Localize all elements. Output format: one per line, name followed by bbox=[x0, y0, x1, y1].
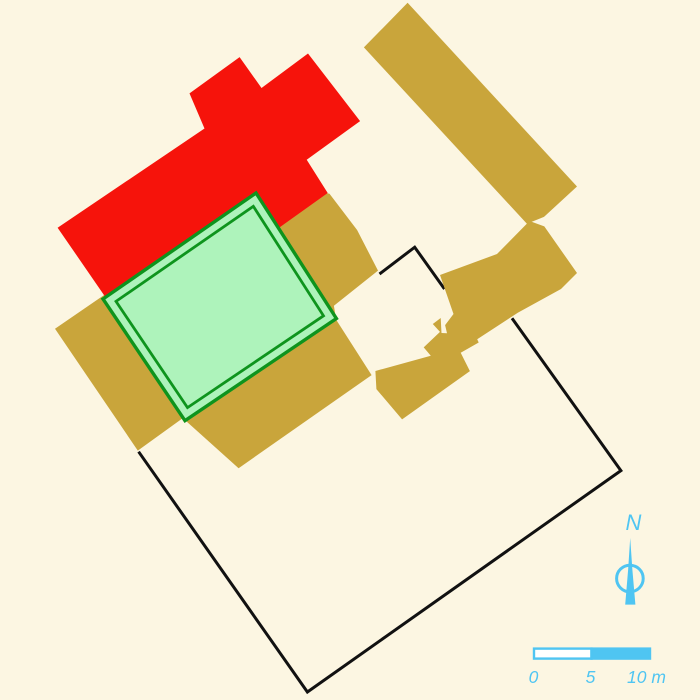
svg-text:10 m: 10 m bbox=[627, 667, 666, 687]
svg-text:5: 5 bbox=[586, 667, 596, 687]
svg-text:N: N bbox=[626, 510, 642, 535]
svg-text:0: 0 bbox=[529, 667, 539, 687]
